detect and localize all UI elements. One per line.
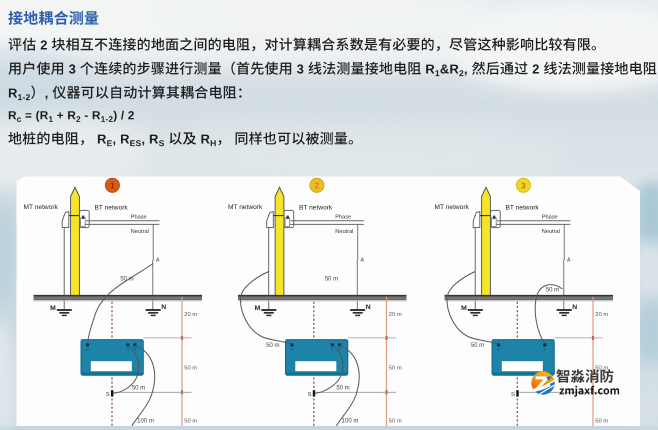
svg-text:1: 1 (110, 180, 115, 190)
svg-text:Neutral: Neutral (542, 229, 560, 235)
svg-text:50 m: 50 m (266, 343, 279, 349)
svg-text:50 m: 50 m (336, 386, 349, 392)
svg-text:MT network: MT network (435, 204, 470, 211)
svg-text:N: N (366, 304, 371, 311)
svg-text:N: N (161, 304, 166, 311)
svg-text:S: S (308, 392, 312, 398)
svg-text:2: 2 (315, 180, 320, 190)
svg-text:20 m: 20 m (184, 312, 197, 318)
svg-text:A: A (156, 258, 160, 264)
svg-text:Neutral: Neutral (335, 229, 353, 235)
svg-text:BT network: BT network (506, 205, 540, 212)
svg-text:100 m: 100 m (137, 419, 154, 425)
svg-text:S: S (511, 392, 515, 398)
svg-text:50 m: 50 m (184, 419, 197, 425)
svg-text:50 m: 50 m (184, 366, 197, 372)
svg-text:MT network: MT network (228, 204, 263, 211)
svg-text:BT network: BT network (95, 205, 129, 212)
svg-text:M: M (255, 305, 261, 312)
svg-text:50 m: 50 m (132, 386, 145, 392)
svg-text:M: M (50, 305, 56, 312)
svg-text:100 m: 100 m (342, 419, 359, 425)
svg-text:50 m: 50 m (389, 366, 402, 372)
svg-text:50 m: 50 m (120, 276, 133, 282)
svg-text:50 m: 50 m (389, 419, 402, 425)
svg-text:Neutral: Neutral (131, 229, 149, 235)
svg-text:20 m: 20 m (389, 312, 402, 318)
svg-text:M: M (461, 305, 467, 312)
svg-text:50 m: 50 m (546, 288, 559, 294)
svg-text:A: A (567, 258, 571, 264)
svg-text:A: A (361, 258, 365, 264)
svg-text:50 m: 50 m (471, 343, 484, 349)
svg-text:50 m: 50 m (595, 419, 608, 425)
svg-text:3: 3 (521, 180, 526, 190)
svg-text:Phase: Phase (131, 214, 147, 220)
svg-text:50 m: 50 m (325, 276, 338, 282)
svg-text:Phase: Phase (542, 214, 558, 220)
svg-text:S: S (106, 392, 110, 398)
svg-text:20 m: 20 m (595, 312, 608, 318)
svg-text:Phase: Phase (335, 214, 351, 220)
svg-text:N: N (572, 304, 577, 311)
svg-text:BT network: BT network (299, 205, 333, 212)
svg-text:MT network: MT network (24, 204, 59, 211)
